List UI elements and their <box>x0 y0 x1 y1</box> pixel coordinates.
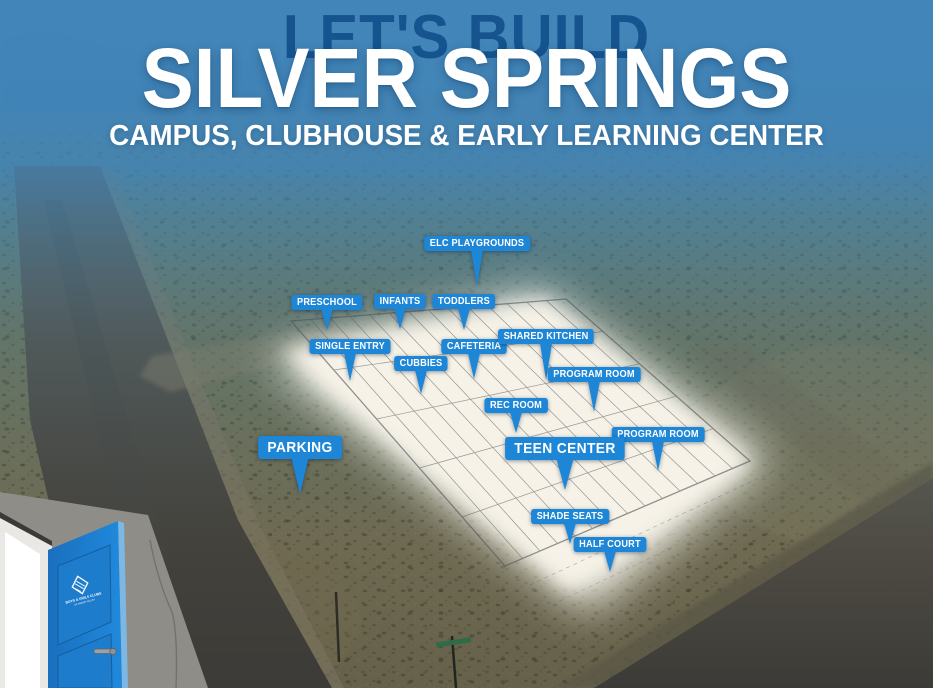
map-label-toddlers: TODDLERS <box>430 294 498 330</box>
map-label-single-entry: SINGLE ENTRY <box>306 339 394 381</box>
map-label-text: INFANTS <box>374 294 426 309</box>
map-label-infants: INFANTS <box>372 294 428 329</box>
map-label-text: ELC PLAYGROUNDS <box>424 236 529 251</box>
map-label-teen-center: TEEN CENTER <box>500 437 630 490</box>
map-label-pointer <box>471 250 483 286</box>
map-label-pointer <box>468 353 480 379</box>
map-label-pointer <box>510 412 522 433</box>
map-label-pointer <box>652 441 664 471</box>
map-label-text: PROGRAM ROOM <box>548 367 640 382</box>
map-label-cubbies: CUBBIES <box>392 356 450 394</box>
map-label-text: CUBBIES <box>394 356 448 371</box>
map-label-text: SHARED KITCHEN <box>498 329 594 344</box>
map-label-pointer <box>458 308 470 330</box>
map-label-half-court: HALF COURT <box>571 537 650 572</box>
map-label-text: PARKING <box>258 436 342 459</box>
map-label-program-room-1: PROGRAM ROOM <box>544 367 645 412</box>
map-label-pointer <box>557 459 574 490</box>
map-label-text: REC ROOM <box>484 398 547 413</box>
map-label-text: PRESCHOOL <box>292 295 363 310</box>
map-label-pointer <box>321 309 333 330</box>
map-label-parking: PARKING <box>255 436 346 494</box>
map-label-pointer <box>344 353 356 381</box>
map-label-pointer <box>604 551 616 572</box>
map-label-pointer <box>415 370 427 394</box>
map-label-text: TODDLERS <box>433 294 496 309</box>
map-label-pointer <box>588 381 600 412</box>
map-label-preschool: PRESCHOOL <box>288 295 365 330</box>
map-label-pointer <box>394 308 406 329</box>
map-label-text: TEEN CENTER <box>505 437 625 460</box>
poster-root: BOYS & GIRLS CLUBS OF MASON VALLEY LET'S… <box>0 0 933 688</box>
map-label-text: SINGLE ENTRY <box>310 339 391 354</box>
map-label-pointer <box>291 458 308 494</box>
map-label-text: SHADE SEATS <box>531 509 609 524</box>
map-label-rec-room: REC ROOM <box>482 398 551 433</box>
map-label-text: HALF COURT <box>574 537 647 552</box>
map-label-elc-playgrounds: ELC PLAYGROUNDS <box>420 236 535 286</box>
map-labels: ELC PLAYGROUNDSPRESCHOOLINFANTSTODDLERSS… <box>0 0 933 688</box>
